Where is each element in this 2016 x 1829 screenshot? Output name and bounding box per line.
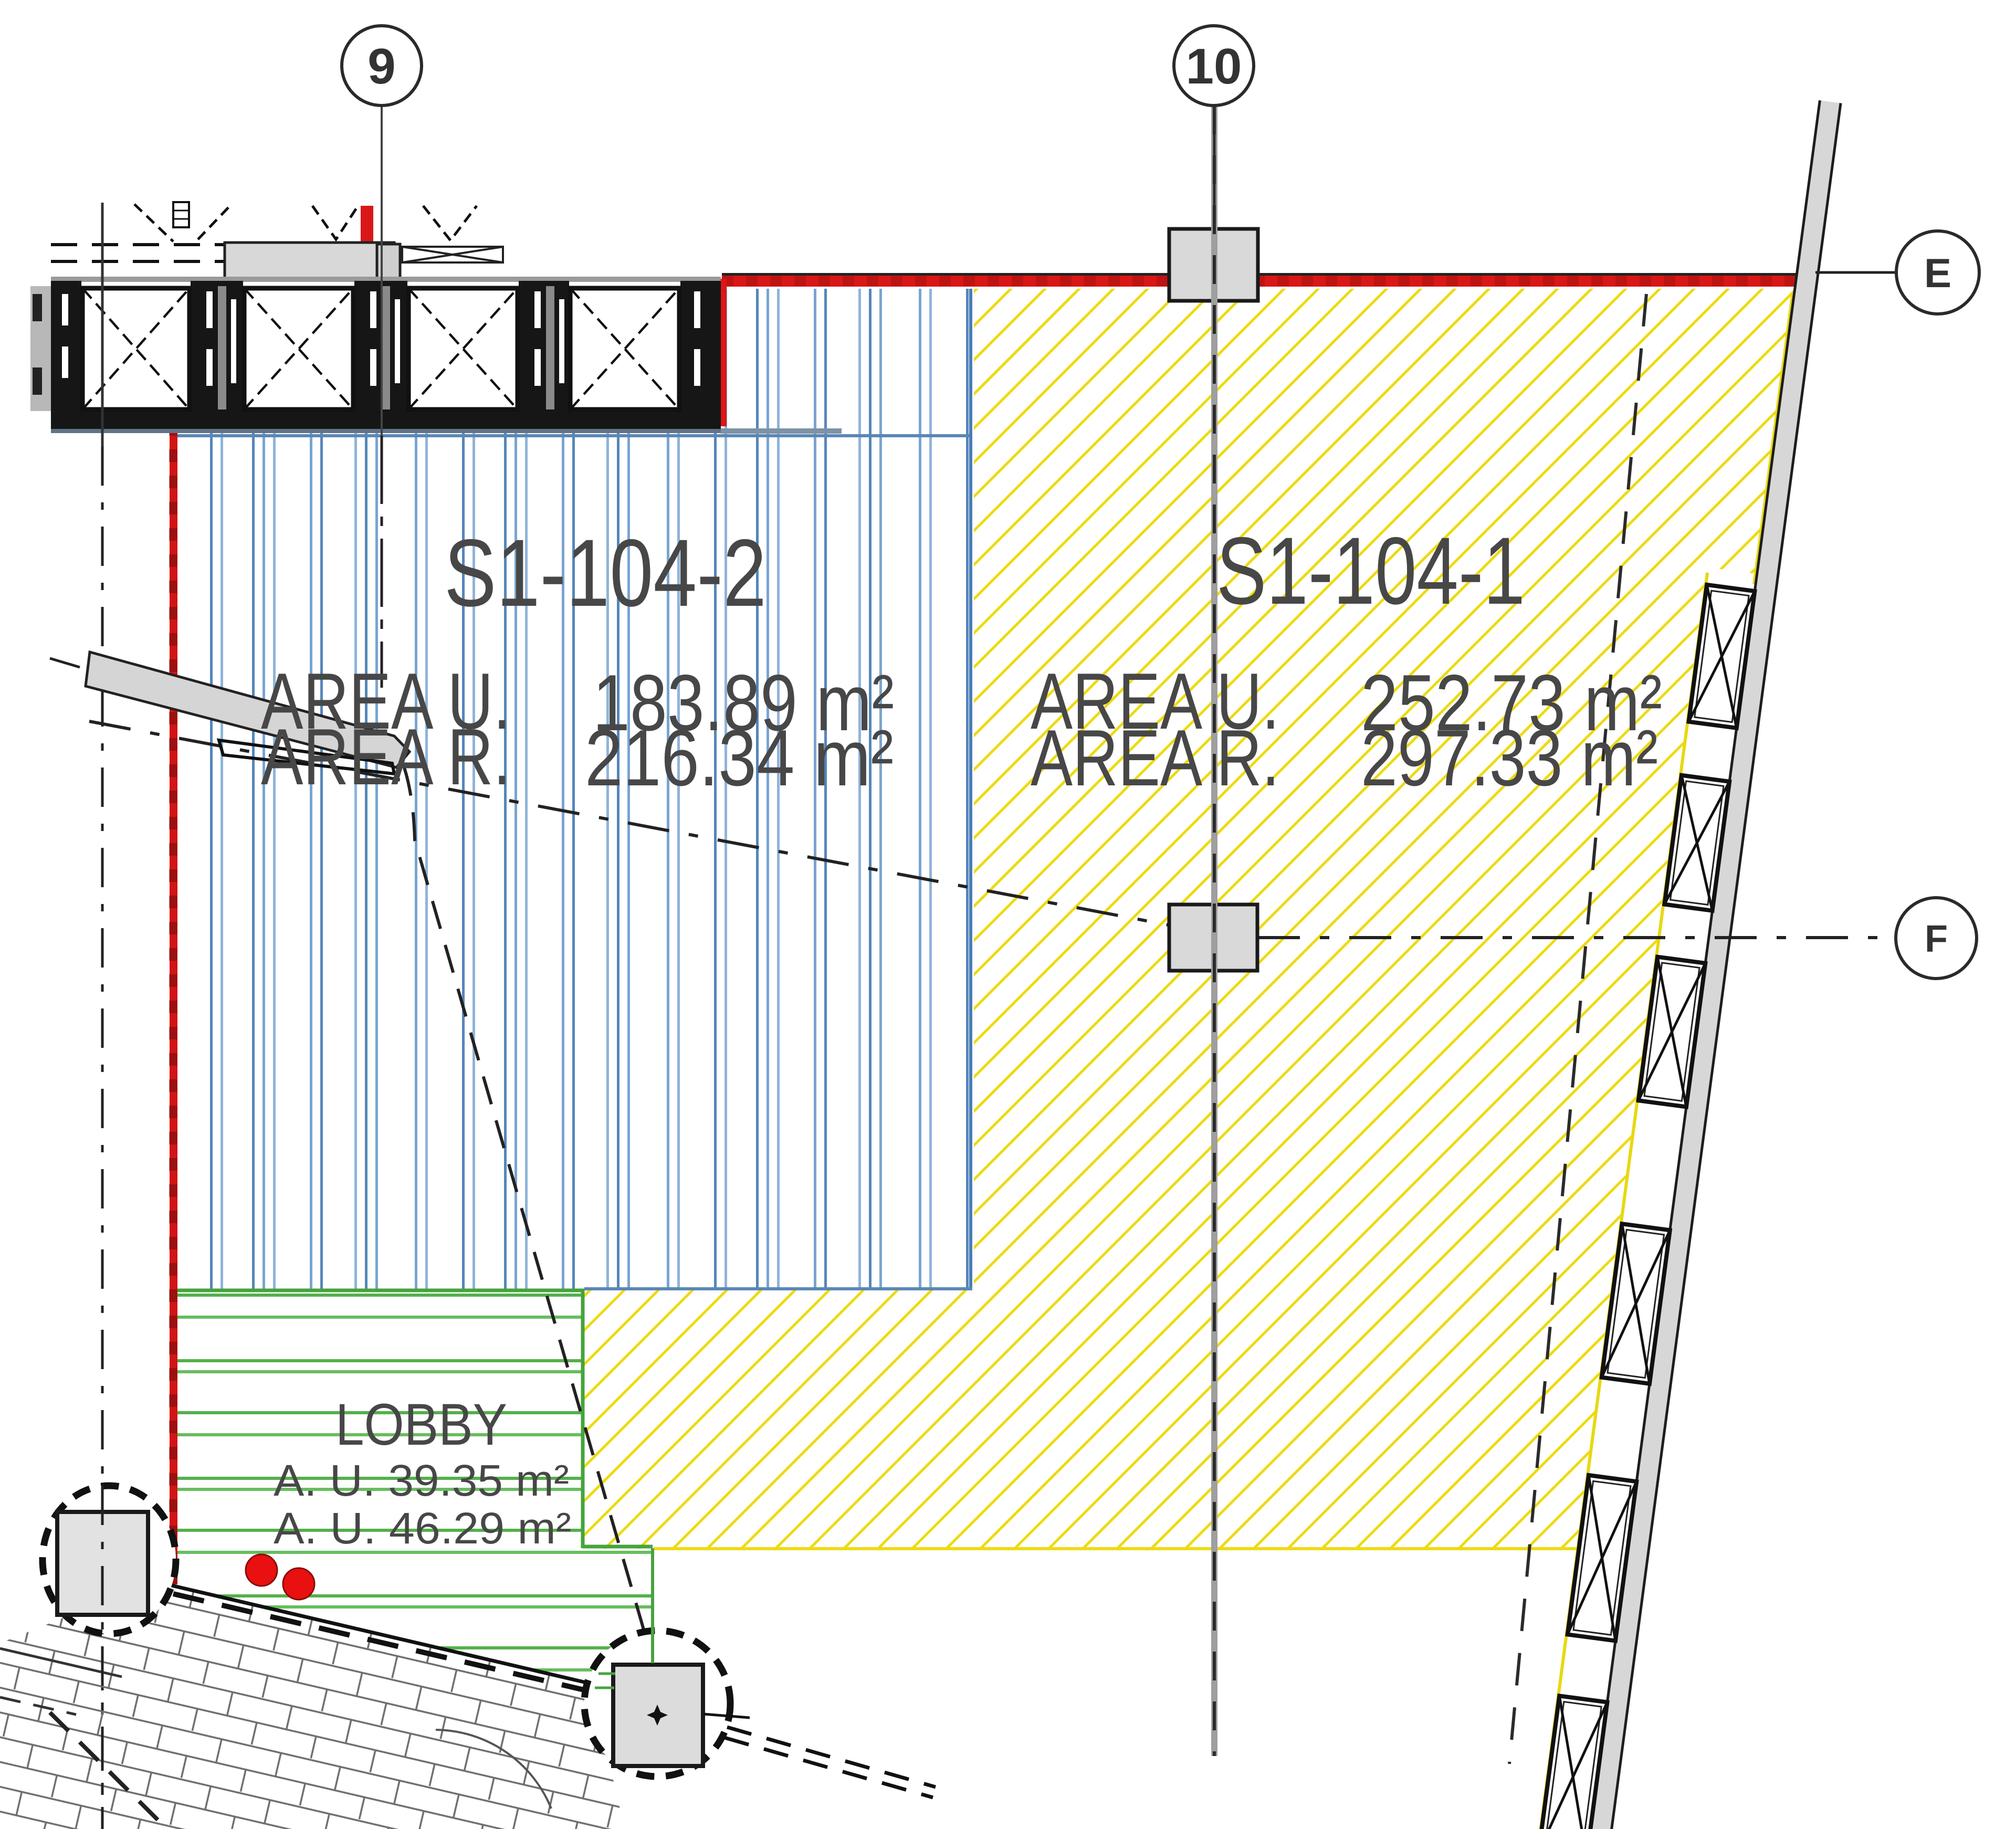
svg-text:10: 10 — [1186, 38, 1242, 94]
svg-text:LOBBY: LOBBY — [335, 1392, 507, 1457]
svg-text:F: F — [1925, 918, 1948, 960]
svg-text:A. U. 39.35 m²: A. U. 39.35 m² — [274, 1456, 569, 1505]
svg-text:E: E — [1924, 250, 1951, 296]
svg-text:9: 9 — [367, 38, 395, 94]
svg-text:S1-104-2: S1-104-2 — [444, 519, 766, 626]
svg-text:AREA R.: AREA R. — [261, 712, 511, 802]
svg-text:A. U. 46.29 m²: A. U. 46.29 m² — [274, 1504, 571, 1553]
svg-text:216.34 m²: 216.34 m² — [585, 713, 894, 803]
svg-text:AREA R.: AREA R. — [1031, 713, 1279, 803]
svg-text:S1-104-1: S1-104-1 — [1216, 517, 1525, 624]
svg-text:297.33 m²: 297.33 m² — [1361, 713, 1658, 803]
